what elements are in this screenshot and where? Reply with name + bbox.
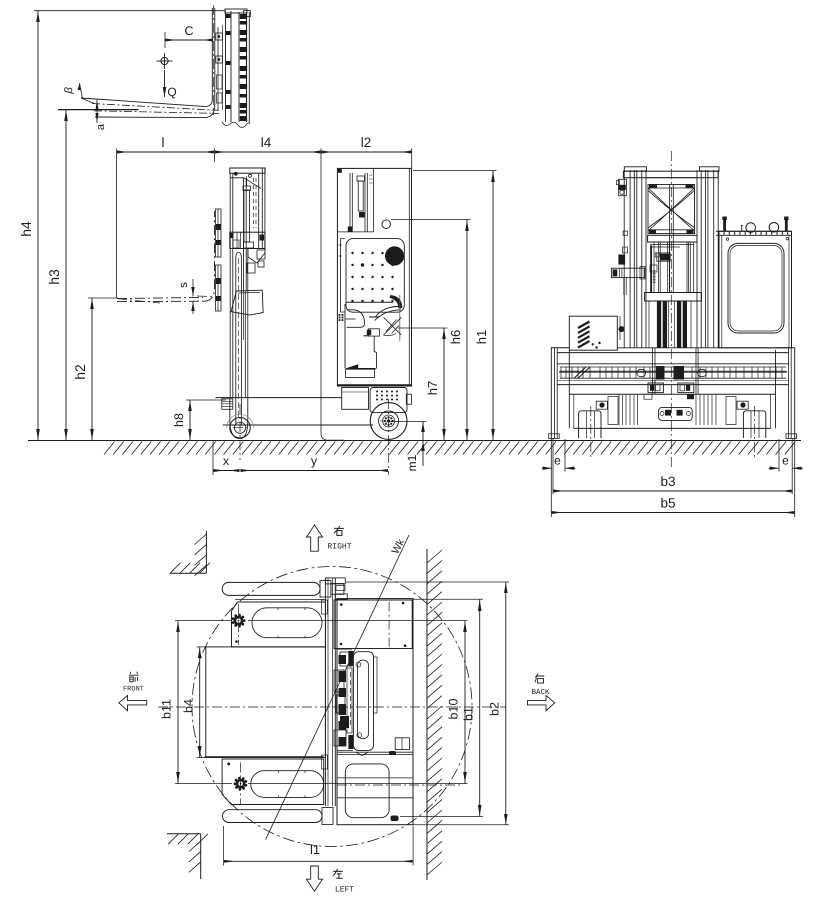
svg-text:RIGHT: RIGHT — [327, 543, 351, 552]
svg-text:a: a — [95, 123, 107, 130]
svg-text:h3: h3 — [46, 269, 62, 285]
svg-text:LEFT: LEFT — [335, 886, 354, 895]
svg-text:s: s — [178, 282, 190, 288]
svg-text:BACK: BACK — [531, 688, 550, 697]
svg-text:l4: l4 — [261, 135, 272, 150]
svg-text:b11: b11 — [160, 699, 174, 719]
svg-text:b3: b3 — [660, 474, 675, 489]
svg-text:y: y — [311, 454, 318, 468]
svg-text:l: l — [162, 135, 165, 150]
svg-text:m1: m1 — [405, 454, 419, 471]
svg-text:C: C — [184, 24, 193, 38]
svg-text:h7: h7 — [425, 381, 440, 395]
svg-text:h4: h4 — [18, 221, 34, 237]
svg-text:b5: b5 — [660, 496, 675, 511]
svg-text:h8: h8 — [172, 413, 186, 427]
svg-text:h1: h1 — [474, 330, 489, 344]
svg-text:b1: b1 — [462, 707, 476, 721]
svg-text:e: e — [554, 454, 561, 468]
svg-text:b4: b4 — [182, 699, 196, 713]
svg-text:x: x — [223, 454, 230, 468]
svg-text:b2: b2 — [488, 702, 502, 716]
svg-text:l2: l2 — [361, 135, 372, 150]
svg-text:h6: h6 — [448, 330, 463, 344]
svg-text:h2: h2 — [72, 364, 88, 380]
svg-text:FRONT: FRONT — [123, 686, 144, 694]
svg-text:Q: Q — [167, 85, 176, 99]
svg-text:e: e — [782, 454, 789, 468]
svg-text:l1: l1 — [310, 842, 320, 857]
svg-text:b10: b10 — [447, 699, 461, 720]
